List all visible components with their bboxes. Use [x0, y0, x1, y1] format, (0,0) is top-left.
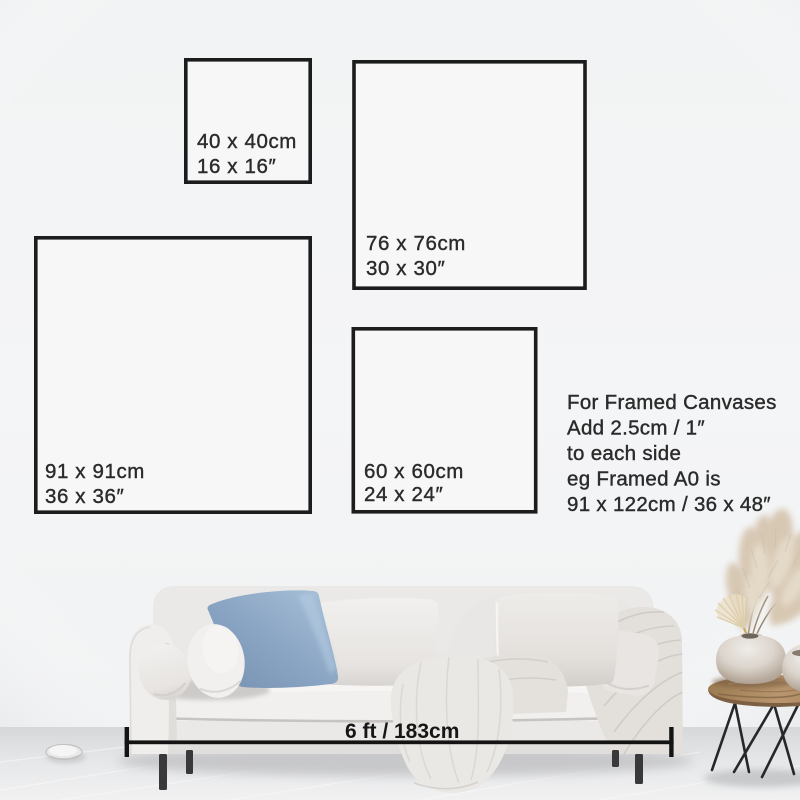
svg-text:For Framed Canvases: For Framed Canvases: [567, 391, 777, 414]
svg-text:eg Framed A0 is: eg Framed A0 is: [567, 468, 721, 491]
svg-text:to each side: to each side: [567, 442, 681, 465]
svg-text:91 x 122cm / 36 x 48″: 91 x 122cm / 36 x 48″: [567, 493, 771, 516]
svg-text:76 x 76cm: 76 x 76cm: [366, 232, 466, 255]
svg-text:24 x 24″: 24 x 24″: [364, 483, 443, 506]
svg-text:40 x 40cm: 40 x 40cm: [197, 130, 297, 153]
svg-text:16 x 16″: 16 x 16″: [197, 155, 276, 178]
svg-text:60 x 60cm: 60 x 60cm: [364, 460, 464, 483]
svg-text:91 x 91cm: 91 x 91cm: [45, 460, 145, 483]
svg-text:30 x 30″: 30 x 30″: [366, 257, 445, 280]
svg-text:36 x 36″: 36 x 36″: [45, 485, 124, 508]
svg-text:Add 2.5cm / 1″: Add 2.5cm / 1″: [567, 417, 705, 440]
svg-text:6 ft / 183cm: 6 ft / 183cm: [345, 720, 459, 743]
